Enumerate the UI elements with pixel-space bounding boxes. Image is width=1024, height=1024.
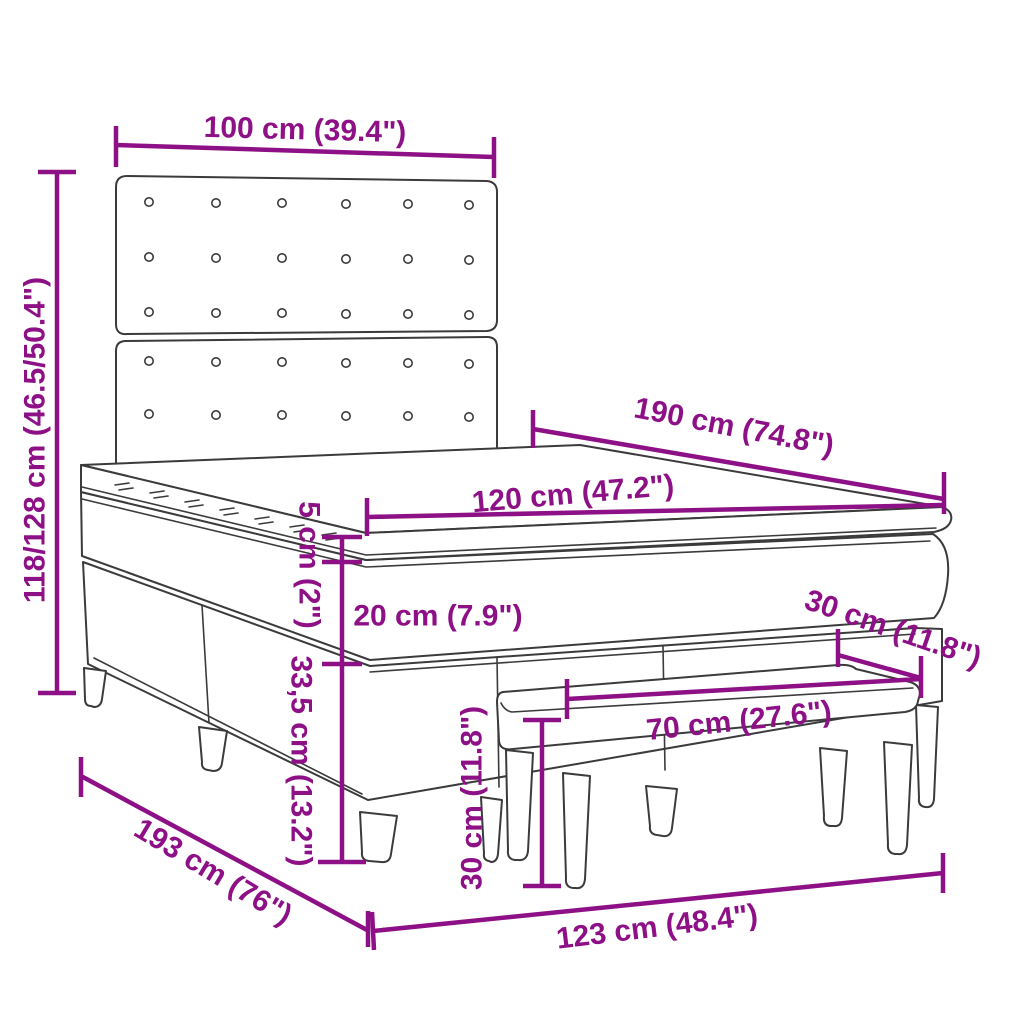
label-topper-thickness: 5 cm (2") xyxy=(293,501,326,629)
bench-leg-front-left xyxy=(506,750,533,860)
label-mattress-thickness: 20 cm (7.9") xyxy=(353,600,522,633)
bed-leg-2 xyxy=(199,727,227,771)
bench-leg-back-right xyxy=(820,748,847,826)
bench xyxy=(497,665,920,888)
label-bench-leg-height: 30 cm (11.8") xyxy=(456,706,489,890)
bed-leg-1 xyxy=(84,668,106,707)
dim-line-floor-length xyxy=(81,757,368,947)
diagram-canvas: 100 cm (39.4") 118/128 cm (46.5/50.4") 1… xyxy=(0,0,1024,1024)
label-overall-height: 118/128 cm (46.5/50.4") xyxy=(19,277,52,603)
label-headboard-width: 100 cm (39.4") xyxy=(203,111,406,149)
label-base-height: 33,5 cm (13.2") xyxy=(285,655,318,866)
headboard xyxy=(116,176,497,478)
bed-leg-3 xyxy=(360,812,397,862)
bench-leg-back-left xyxy=(563,773,590,888)
bed-leg-5 xyxy=(916,705,938,807)
bed-leg-6 xyxy=(646,786,677,836)
label-floor-length: 193 cm (76") xyxy=(128,812,297,932)
product-dimension-diagram: 100 cm (39.4") 118/128 cm (46.5/50.4") 1… xyxy=(0,0,1024,1024)
label-floor-width: 123 cm (48.4") xyxy=(554,898,759,955)
bench-leg-front-right xyxy=(884,742,912,854)
headboard-upper-panel xyxy=(116,176,497,334)
